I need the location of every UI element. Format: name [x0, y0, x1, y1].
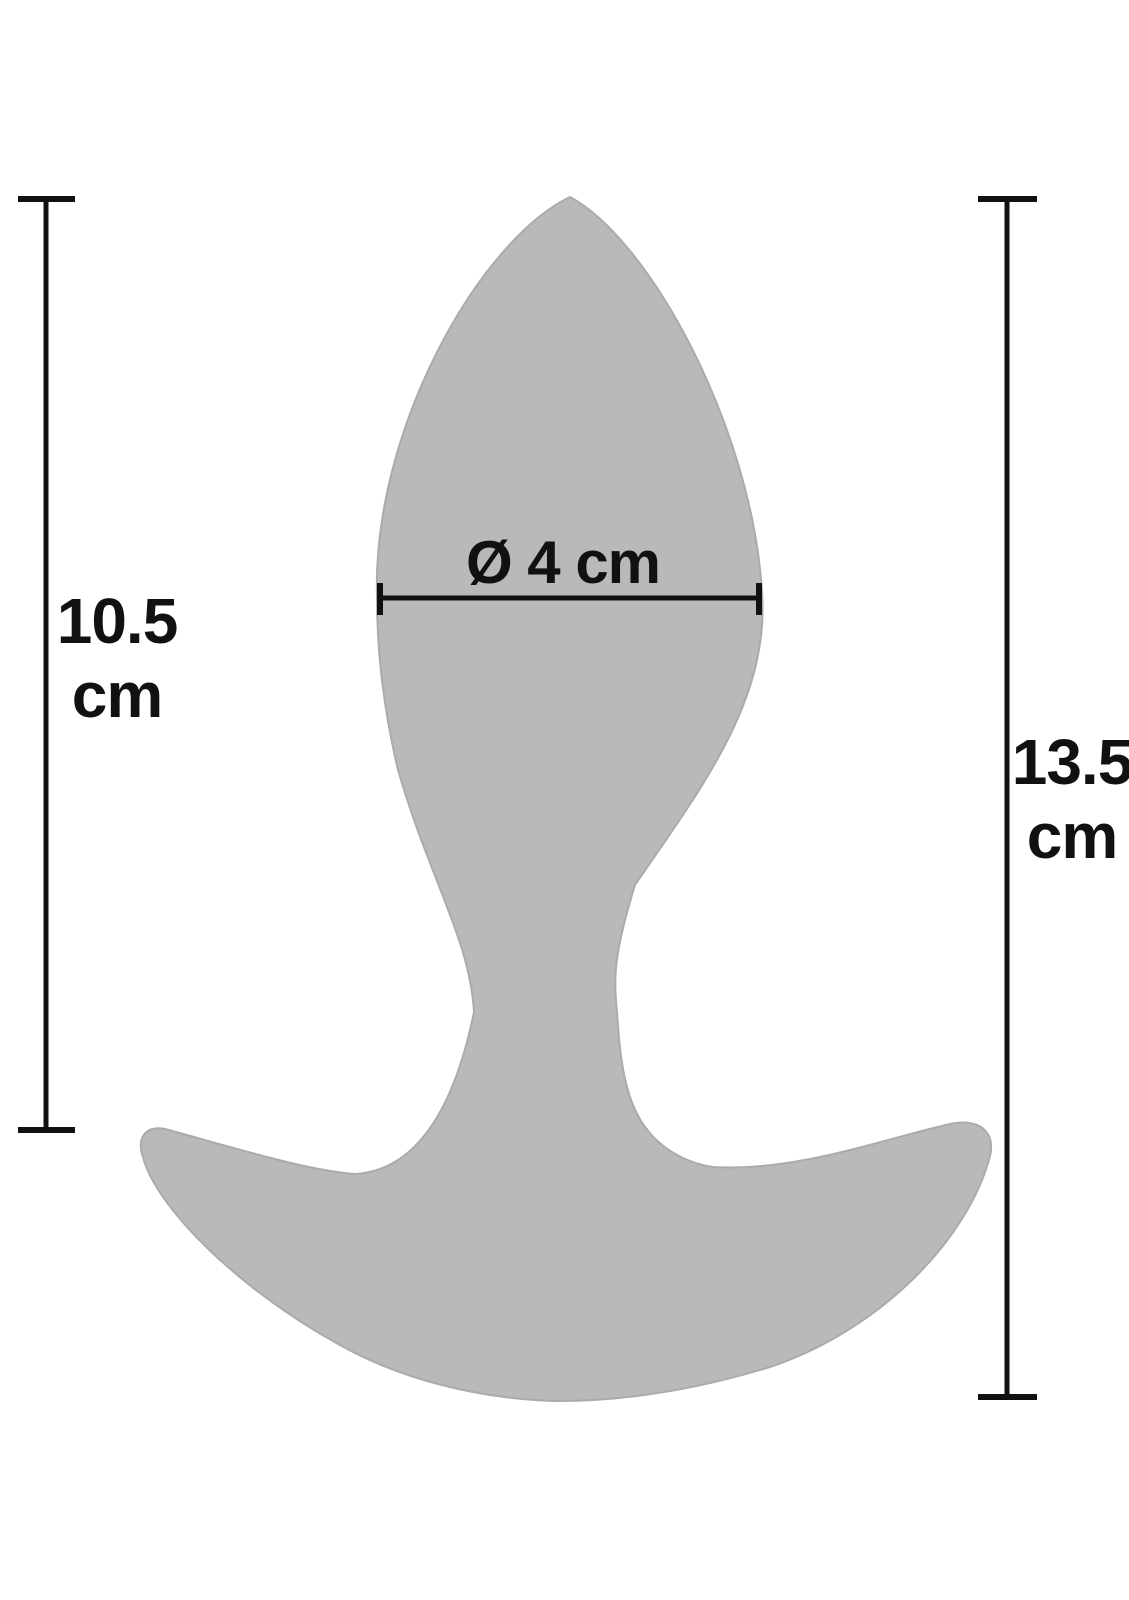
insertable-length-value: 10.5 [17, 584, 217, 658]
dimension-diagram: 10.5 cm 13.5 cm Ø 4 cm [0, 0, 1129, 1600]
total-length-unit: cm [972, 799, 1129, 873]
diagram-graphics [0, 0, 1129, 1600]
total-length-value: 13.5 [972, 725, 1129, 799]
product-silhouette [141, 197, 991, 1401]
insertable-length-label: 10.5 cm [17, 584, 217, 732]
total-length-label: 13.5 cm [972, 725, 1129, 873]
insertable-length-unit: cm [17, 658, 217, 732]
diameter-label: Ø 4 cm [403, 531, 723, 595]
